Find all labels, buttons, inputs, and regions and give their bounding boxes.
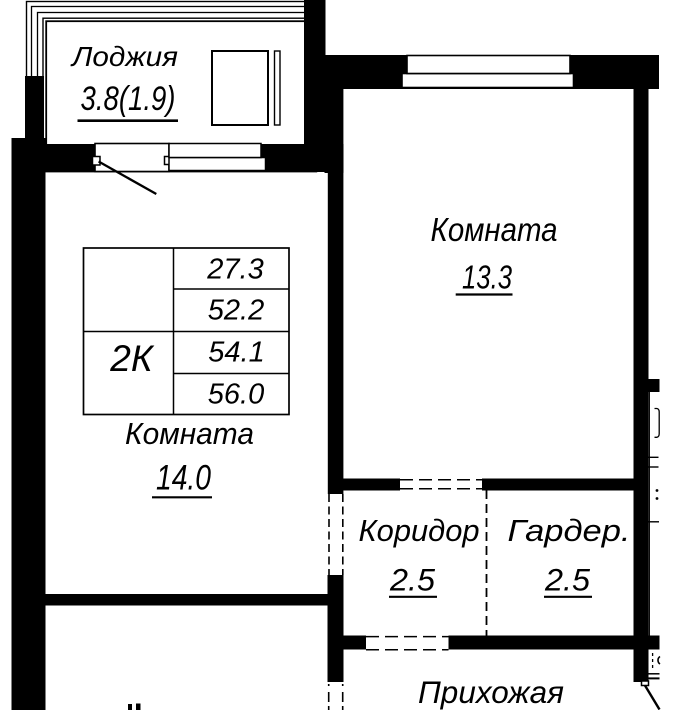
svg-text:Лоджия: Лоджия [70, 41, 178, 72]
svg-text:2.5: 2.5 [544, 562, 591, 598]
svg-text:Прихожая: Прихожая [418, 674, 564, 710]
svg-text:Гардер.: Гардер. [508, 513, 631, 548]
svg-text:14.0: 14.0 [156, 457, 211, 497]
svg-text:56.0: 56.0 [208, 379, 264, 411]
svg-text:Комната: Комната [125, 417, 254, 451]
svg-text:3.8(1.9): 3.8(1.9) [81, 80, 176, 118]
svg-text:Комната: Комната [431, 211, 558, 248]
svg-text:13.3: 13.3 [462, 260, 512, 297]
svg-text:Коридор: Коридор [359, 513, 480, 548]
svg-text:27.3: 27.3 [206, 254, 263, 286]
svg-text:2.5: 2.5 [389, 562, 436, 598]
svg-text:52.2: 52.2 [208, 295, 264, 327]
svg-text:54.1: 54.1 [208, 337, 264, 369]
svg-text:2К: 2К [109, 338, 155, 379]
